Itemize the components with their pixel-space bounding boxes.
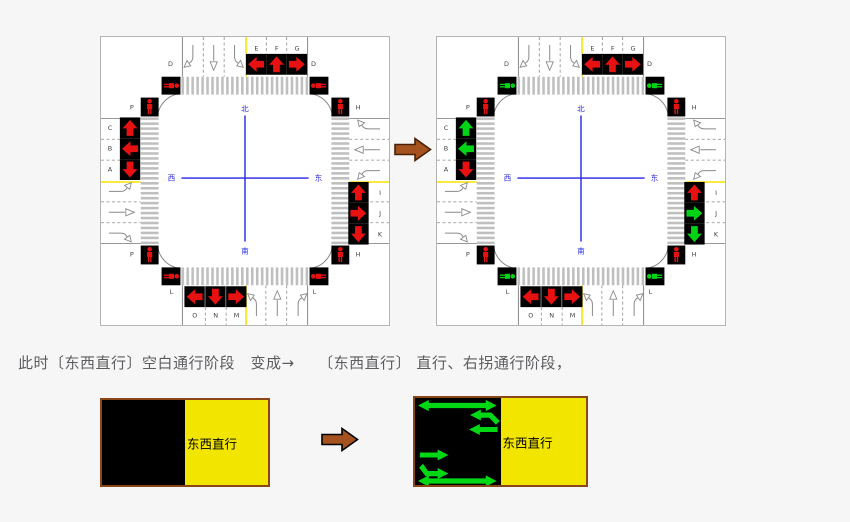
- phase-arrows-canvas: [102, 400, 185, 485]
- signal-light: [120, 117, 140, 138]
- lane-letter: C: [108, 124, 113, 132]
- compass-label: 南: [241, 245, 248, 255]
- signal-light: [623, 54, 643, 75]
- pedestrian-signal: [331, 246, 349, 265]
- signal-light: [684, 182, 704, 203]
- corner-curb: [644, 244, 669, 269]
- compass-label: 东: [315, 173, 322, 183]
- corner-letter: H: [692, 250, 697, 258]
- lane-arrow-icon: [694, 171, 716, 180]
- left-hook-arrow-icon: [470, 410, 500, 425]
- intersection-svg: ECIOFBJNGAKMDDLLPPHH北南西东: [437, 37, 725, 325]
- pedestrian-signal: [667, 246, 685, 265]
- signal-light: [520, 286, 540, 307]
- signal-light: [684, 224, 704, 245]
- lane-letter: A: [108, 166, 113, 174]
- signal-light: [582, 54, 602, 75]
- crosswalk-stripes: [477, 116, 495, 245]
- lane-arrow-icon: [610, 291, 617, 316]
- signal-light: [120, 159, 140, 180]
- lane-letter: I: [715, 189, 717, 197]
- lane-arrow-icon: [546, 45, 553, 70]
- lane-arrow-icon: [235, 45, 244, 67]
- lane-letter: G: [295, 44, 300, 52]
- page: ECIOFBJNGAKMDDLLPPHH北南西东 ECIOFBJNGAKMDDL…: [0, 0, 850, 522]
- lane-letter: O: [528, 312, 533, 320]
- crosswalk-stripes: [180, 267, 309, 285]
- signal-light: [684, 203, 704, 224]
- right-arrow-icon: [420, 450, 449, 461]
- corner-letter: H: [356, 103, 361, 111]
- road-letter: D: [168, 60, 173, 68]
- signal-light: [205, 286, 225, 307]
- lane-letter: E: [590, 44, 594, 52]
- road-letter: D: [504, 60, 509, 68]
- corner-letter: P: [130, 103, 134, 111]
- lane-letter: M: [234, 312, 240, 320]
- lane-letter: J: [378, 210, 381, 218]
- lane-arrow-icon: [445, 183, 467, 192]
- phase-yellow-area-before: 东西直行: [185, 400, 268, 485]
- lane-arrow-icon: [445, 209, 470, 216]
- corner-letter: H: [692, 103, 697, 111]
- corner-curb: [158, 244, 183, 269]
- phase-panel-before: 东西直行: [100, 398, 270, 487]
- pedestrian-signal: [141, 98, 159, 117]
- corner-curb: [494, 94, 519, 119]
- corner-letter: P: [466, 103, 470, 111]
- lane-letter: M: [570, 312, 576, 320]
- corner-letter: P: [466, 250, 470, 258]
- corner-letter: H: [356, 250, 361, 258]
- corner-curb: [158, 94, 183, 119]
- road-letter: D: [311, 60, 316, 68]
- lane-arrow-icon: [109, 183, 131, 192]
- compass-label: 北: [241, 104, 249, 113]
- corner-curb: [644, 94, 669, 119]
- pedestrian-signal: [498, 267, 517, 285]
- compass-label: 西: [504, 174, 511, 183]
- lane-letter: B: [444, 145, 448, 153]
- signal-light: [184, 286, 204, 307]
- crosswalk-stripes: [331, 116, 349, 245]
- lane-arrow-icon: [634, 294, 643, 316]
- transition-arrow-icon: [321, 427, 359, 452]
- crosswalk-stripes: [516, 77, 645, 95]
- signal-light: [120, 138, 140, 159]
- right-hook-arrow-icon: [419, 464, 448, 479]
- road-letter: L: [649, 288, 653, 296]
- corner-curb: [494, 244, 519, 269]
- lane-letter: C: [444, 124, 449, 132]
- lane-arrow-icon: [691, 146, 716, 153]
- corner-curb: [308, 244, 333, 269]
- signal-light: [246, 54, 266, 75]
- compass-label: 北: [577, 104, 585, 113]
- signal-light: [562, 286, 582, 307]
- signal-light: [456, 159, 476, 180]
- lane-arrow-icon: [358, 171, 380, 180]
- signal-light: [348, 182, 368, 203]
- lane-letter: E: [254, 44, 258, 52]
- lane-arrow-icon: [584, 294, 593, 316]
- lane-arrow-icon: [248, 294, 257, 316]
- crosswalk-stripes: [667, 116, 685, 245]
- lane-arrow-icon: [358, 120, 380, 129]
- pedestrian-signal: [477, 98, 495, 117]
- pedestrian-signal: [141, 246, 159, 265]
- left-arrow-icon: [469, 424, 498, 435]
- lane-letter: F: [275, 44, 279, 52]
- road-letter: L: [170, 288, 174, 296]
- signal-light: [541, 286, 561, 307]
- signal-light: [602, 54, 622, 75]
- lane-letter: K: [378, 231, 383, 239]
- lane-arrow-icon: [520, 45, 529, 67]
- lane-arrow-icon: [694, 120, 716, 129]
- road-letter: L: [313, 288, 317, 296]
- phase-panel-after: 东西直行: [413, 396, 588, 487]
- signal-light: [266, 54, 286, 75]
- signal-light: [348, 203, 368, 224]
- compass-label: 西: [168, 174, 175, 183]
- lane-letter: N: [213, 312, 218, 320]
- double-headed-horizontal-arrow-icon: [418, 475, 497, 485]
- pedestrian-signal: [646, 267, 665, 285]
- signal-light: [456, 117, 476, 138]
- lane-arrow-icon: [274, 291, 281, 316]
- lane-arrow-icon: [571, 45, 580, 67]
- lane-letter: B: [108, 145, 112, 153]
- compass-label: 东: [651, 173, 658, 183]
- road-letter: D: [647, 60, 652, 68]
- pedestrian-signal: [331, 98, 349, 117]
- signal-light: [226, 286, 246, 307]
- lane-letter: F: [611, 44, 615, 52]
- lane-arrow-icon: [298, 294, 307, 316]
- signal-light: [287, 54, 307, 75]
- phase-arrows-canvas: [415, 398, 501, 485]
- pedestrian-signal: [162, 77, 181, 95]
- phase-label: 东西直行: [503, 432, 553, 451]
- double-headed-horizontal-arrow-icon: [418, 400, 497, 411]
- lane-arrow-icon: [445, 233, 467, 242]
- lane-letter: G: [631, 44, 636, 52]
- lane-arrow-icon: [184, 45, 193, 67]
- lane-letter: I: [379, 189, 381, 197]
- signal-light: [456, 138, 476, 159]
- phase-black-area-before: [102, 400, 185, 485]
- caption-text: 此时〔东西直行〕空白通行阶段 变成→ 〔东西直行〕 直行、右拐通行阶段，: [18, 352, 571, 373]
- intersection-svg: ECIOFBJNGAKMDDLLPPHH北南西东: [101, 37, 389, 325]
- lane-arrow-icon: [355, 146, 380, 153]
- pedestrian-signal: [667, 98, 685, 117]
- lane-letter: K: [714, 231, 719, 239]
- intersection-diagram-before: ECIOFBJNGAKMDDLLPPHH北南西东: [100, 36, 390, 326]
- pedestrian-signal: [646, 77, 665, 95]
- crosswalk-stripes: [141, 116, 159, 245]
- transition-arrow-icon: [394, 137, 432, 162]
- lane-letter: N: [549, 312, 554, 320]
- lane-arrow-icon: [109, 209, 134, 216]
- pedestrian-signal: [310, 267, 329, 285]
- lane-letter: O: [192, 312, 197, 320]
- corner-letter: P: [130, 250, 134, 258]
- intersection-diagram-after: ECIOFBJNGAKMDDLLPPHH北南西东: [436, 36, 726, 326]
- lane-letter: J: [714, 210, 717, 218]
- road-letter: L: [506, 288, 510, 296]
- compass-label: 南: [577, 245, 584, 255]
- pedestrian-signal: [498, 77, 517, 95]
- crosswalk-stripes: [516, 267, 645, 285]
- lane-arrow-icon: [109, 233, 131, 242]
- phase-label: 东西直行: [187, 433, 237, 452]
- corner-curb: [308, 94, 333, 119]
- phase-black-area-after: [415, 398, 501, 485]
- pedestrian-signal: [477, 246, 495, 265]
- pedestrian-signal: [310, 77, 329, 95]
- phase-yellow-area-after: 东西直行: [501, 398, 587, 485]
- signal-light: [348, 224, 368, 245]
- lane-arrow-icon: [210, 45, 217, 70]
- pedestrian-signal: [162, 267, 181, 285]
- lane-letter: A: [444, 166, 449, 174]
- crosswalk-stripes: [180, 77, 309, 95]
